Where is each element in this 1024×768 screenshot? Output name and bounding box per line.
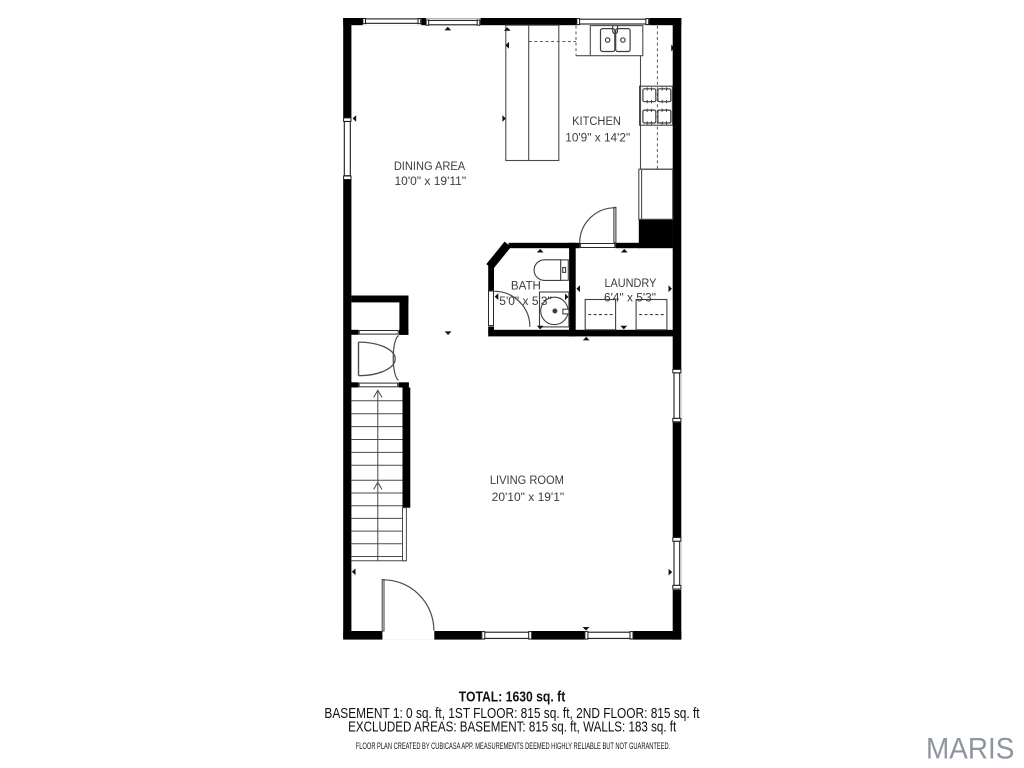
svg-text:10'9" x 14'2": 10'9" x 14'2" [565,130,630,144]
svg-text:20'10" x 19'1": 20'10" x 19'1" [492,490,565,504]
svg-text:5'0" x 5'3": 5'0" x 5'3" [499,294,551,308]
svg-text:10'0" x 19'11": 10'0" x 19'11" [394,174,466,188]
svg-text:TOTAL: 1630 sq. ft: TOTAL: 1630 sq. ft [459,688,566,704]
svg-text:6'4" x 5'3": 6'4" x 5'3" [604,290,656,304]
svg-text:DINING AREA: DINING AREA [394,159,466,173]
svg-text:KITCHEN: KITCHEN [572,115,621,129]
svg-text:LAUNDRY: LAUNDRY [604,278,656,291]
svg-text:FLOOR PLAN CREATED BY CUBICASA: FLOOR PLAN CREATED BY CUBICASA APP. MEAS… [356,741,670,752]
svg-text:LIVING ROOM: LIVING ROOM [490,474,564,488]
svg-text:MARIS: MARIS [926,733,1014,766]
svg-text:EXCLUDED AREAS: BASEMENT: 815: EXCLUDED AREAS: BASEMENT: 815 sq. ft, WA… [348,718,676,735]
svg-text:BATH: BATH [511,278,541,292]
